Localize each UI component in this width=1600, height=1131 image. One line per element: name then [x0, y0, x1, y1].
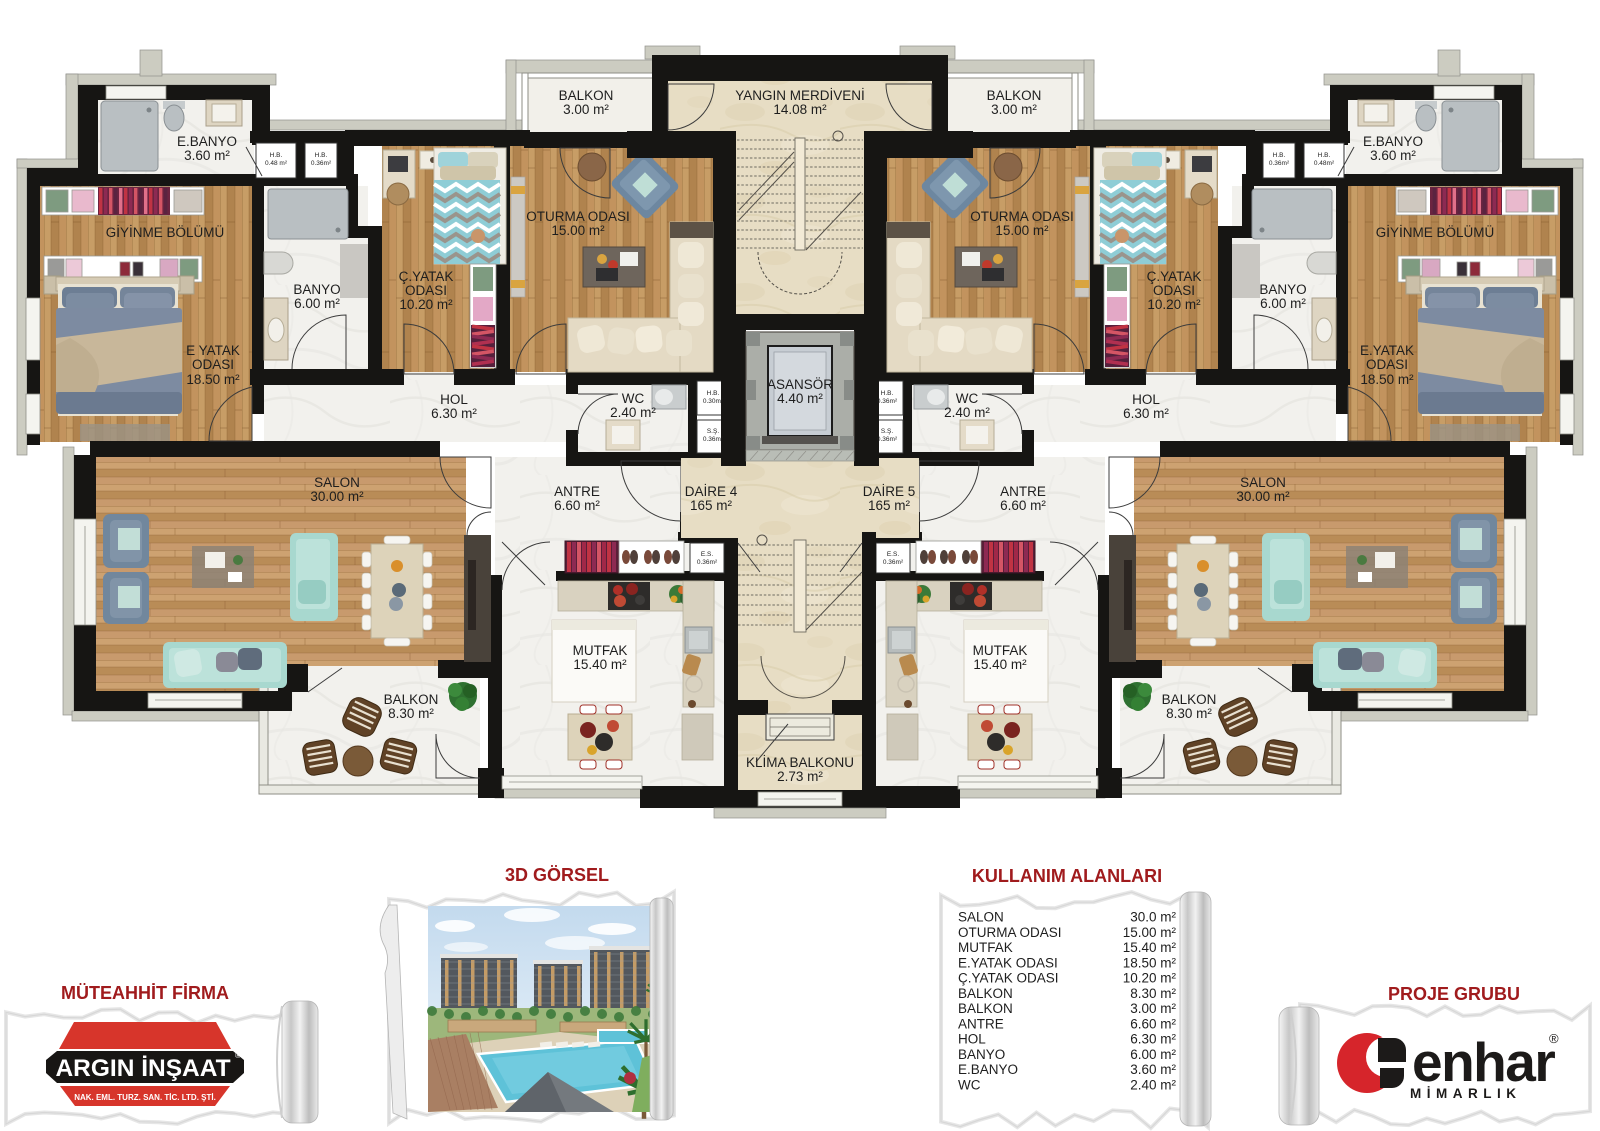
svg-text:ODASI: ODASI [405, 283, 447, 298]
svg-text:BANYO: BANYO [958, 1047, 1005, 1062]
svg-text:8.30 m²: 8.30 m² [388, 706, 434, 721]
svg-text:H.B.: H.B. [315, 152, 328, 159]
svg-text:MUTFAK: MUTFAK [573, 643, 628, 658]
svg-text:3.00 m²: 3.00 m² [991, 102, 1037, 117]
svg-text:HOL: HOL [1132, 392, 1160, 407]
svg-text:BANYO: BANYO [293, 282, 340, 297]
svg-text:0.36m²: 0.36m² [1269, 160, 1290, 167]
svg-text:GİYİNME BÖLÜMÜ: GİYİNME BÖLÜMÜ [106, 225, 225, 240]
svg-text:15.00 m²: 15.00 m² [1123, 925, 1177, 940]
svg-text:6.30 m²: 6.30 m² [1123, 406, 1169, 421]
svg-text:15.00 m²: 15.00 m² [551, 223, 605, 238]
svg-text:6.60 m²: 6.60 m² [554, 498, 600, 513]
svg-text:SALON: SALON [958, 910, 1004, 925]
svg-text:14.08 m²: 14.08 m² [773, 102, 827, 117]
svg-text:MÜTEAHHİT FİRMA: MÜTEAHHİT FİRMA [61, 983, 229, 1003]
svg-text:BALKON: BALKON [987, 88, 1042, 103]
svg-text:S.Ş.: S.Ş. [881, 428, 893, 435]
svg-text:OTURMA ODASI: OTURMA ODASI [970, 209, 1074, 224]
svg-text:E.YATAK: E.YATAK [1360, 343, 1414, 358]
svg-text:0.30m²: 0.30m² [703, 398, 724, 405]
svg-text:E.S.: E.S. [887, 551, 899, 558]
svg-text:BALKON: BALKON [958, 986, 1013, 1001]
svg-text:DAİRE 5: DAİRE 5 [863, 484, 916, 499]
svg-text:ANTRE: ANTRE [1000, 484, 1046, 499]
svg-text:3D GÖRSEL: 3D GÖRSEL [505, 865, 609, 885]
svg-text:Ç.YATAK: Ç.YATAK [399, 269, 454, 284]
svg-text:6.30 m²: 6.30 m² [1130, 1032, 1176, 1047]
svg-text:OTURMA ODASI: OTURMA ODASI [526, 209, 630, 224]
svg-text:SALON: SALON [1240, 475, 1286, 490]
svg-text:®: ® [235, 1051, 241, 1060]
svg-text:15.40 m²: 15.40 m² [973, 657, 1027, 672]
svg-text:ANTRE: ANTRE [554, 484, 600, 499]
svg-text:ODASI: ODASI [192, 357, 234, 372]
svg-text:165 m²: 165 m² [868, 498, 911, 513]
svg-text:6.00 m²: 6.00 m² [1130, 1047, 1176, 1062]
svg-text:NAK. EML. TURZ. SAN. TİC. LTD.: NAK. EML. TURZ. SAN. TİC. LTD. ŞTİ. [74, 1093, 216, 1102]
svg-text:ARGIN İNŞAAT: ARGIN İNŞAAT [55, 1055, 230, 1082]
svg-text:0.36m²: 0.36m² [311, 160, 332, 167]
svg-text:10.20 m²: 10.20 m² [1123, 971, 1177, 986]
svg-text:0.36m²: 0.36m² [703, 436, 724, 443]
svg-text:15.00 m²: 15.00 m² [995, 223, 1049, 238]
svg-text:GİYİNME BÖLÜMÜ: GİYİNME BÖLÜMÜ [1376, 225, 1495, 240]
svg-text:WC: WC [958, 1078, 981, 1093]
svg-text:E.BANYO: E.BANYO [1363, 134, 1423, 149]
svg-text:MUTFAK: MUTFAK [958, 940, 1013, 955]
svg-text:10.20 m²: 10.20 m² [399, 297, 453, 312]
svg-text:0.48m²: 0.48m² [1314, 160, 1335, 167]
svg-text:0.48 m²: 0.48 m² [265, 160, 288, 167]
svg-text:3.00 m²: 3.00 m² [563, 102, 609, 117]
svg-text:3.60 m²: 3.60 m² [184, 148, 230, 163]
svg-text:2.40 m²: 2.40 m² [610, 405, 656, 420]
svg-text:E.BANYO: E.BANYO [958, 1062, 1018, 1077]
svg-text:E.S.: E.S. [701, 551, 713, 558]
svg-text:30.0 m²: 30.0 m² [1130, 910, 1176, 925]
svg-text:DAİRE 4: DAİRE 4 [685, 484, 738, 499]
svg-text:8.30 m²: 8.30 m² [1166, 706, 1212, 721]
svg-text:HOL: HOL [440, 392, 468, 407]
svg-text:165 m²: 165 m² [690, 498, 733, 513]
svg-text:®: ® [1549, 1031, 1559, 1046]
svg-text:E.BANYO: E.BANYO [177, 134, 237, 149]
svg-text:10.20 m²: 10.20 m² [1147, 297, 1201, 312]
svg-text:ASANSÖR: ASANSÖR [767, 377, 833, 392]
svg-text:KULLANIM ALANLARI: KULLANIM ALANLARI [972, 866, 1162, 886]
svg-text:2.73 m²: 2.73 m² [777, 769, 823, 784]
svg-text:MİMARLIK: MİMARLIK [1410, 1086, 1522, 1101]
svg-text:H.B.: H.B. [270, 152, 283, 159]
svg-text:4.40 m²: 4.40 m² [777, 391, 823, 406]
svg-text:3.60 m²: 3.60 m² [1130, 1062, 1176, 1077]
svg-text:ODASI: ODASI [1366, 357, 1408, 372]
svg-text:Ç.YATAK: Ç.YATAK [1147, 269, 1202, 284]
svg-text:HOL: HOL [958, 1032, 986, 1047]
svg-text:WC: WC [956, 391, 979, 406]
svg-text:enhar: enhar [1412, 1031, 1555, 1093]
svg-text:6.30 m²: 6.30 m² [431, 406, 477, 421]
svg-text:2.40 m²: 2.40 m² [1130, 1078, 1176, 1093]
svg-text:BALKON: BALKON [559, 88, 614, 103]
svg-text:MUTFAK: MUTFAK [973, 643, 1028, 658]
svg-text:E.YATAK ODASI: E.YATAK ODASI [958, 955, 1058, 970]
svg-text:OTURMA ODASI: OTURMA ODASI [958, 925, 1062, 940]
svg-text:18.50 m²: 18.50 m² [186, 372, 240, 387]
svg-text:30.00 m²: 30.00 m² [310, 489, 364, 504]
svg-text:0.36m²: 0.36m² [877, 436, 898, 443]
svg-text:18.50 m²: 18.50 m² [1360, 372, 1414, 387]
svg-text:6.60 m²: 6.60 m² [1130, 1016, 1176, 1031]
svg-text:0.36m²: 0.36m² [877, 398, 898, 405]
svg-text:0.36m²: 0.36m² [883, 559, 904, 566]
svg-text:BALKON: BALKON [384, 692, 439, 707]
svg-text:8.30 m²: 8.30 m² [1130, 986, 1176, 1001]
svg-text:BANYO: BANYO [1259, 282, 1306, 297]
svg-text:ANTRE: ANTRE [958, 1016, 1004, 1031]
svg-text:WC: WC [622, 391, 645, 406]
svg-text:KLİMA BALKONU: KLİMA BALKONU [746, 755, 854, 770]
svg-text:15.40 m²: 15.40 m² [573, 657, 627, 672]
svg-text:ODASI: ODASI [1153, 283, 1195, 298]
svg-text:0.36m²: 0.36m² [697, 559, 718, 566]
svg-text:2.40 m²: 2.40 m² [944, 405, 990, 420]
svg-text:6.00 m²: 6.00 m² [294, 296, 340, 311]
svg-text:H.B.: H.B. [707, 390, 720, 397]
svg-text:PROJE GRUBU: PROJE GRUBU [1388, 984, 1520, 1004]
svg-text:H.B.: H.B. [1318, 152, 1331, 159]
svg-text:YANGIN MERDİVENİ: YANGIN MERDİVENİ [735, 88, 865, 103]
svg-text:H.B.: H.B. [881, 390, 894, 397]
svg-text:S.Ş.: S.Ş. [707, 428, 719, 435]
svg-text:SALON: SALON [314, 475, 360, 490]
svg-text:3.00 m²: 3.00 m² [1130, 1001, 1176, 1016]
svg-text:Ç.YATAK ODASI: Ç.YATAK ODASI [958, 971, 1059, 986]
svg-text:E YATAK: E YATAK [186, 343, 240, 358]
svg-text:6.00 m²: 6.00 m² [1260, 296, 1306, 311]
svg-text:15.40 m²: 15.40 m² [1123, 940, 1177, 955]
svg-text:H.B.: H.B. [1273, 152, 1286, 159]
svg-text:BALKON: BALKON [1162, 692, 1217, 707]
svg-text:3.60 m²: 3.60 m² [1370, 148, 1416, 163]
svg-text:30.00 m²: 30.00 m² [1236, 489, 1290, 504]
svg-text:BALKON: BALKON [958, 1001, 1013, 1016]
svg-text:18.50 m²: 18.50 m² [1123, 955, 1177, 970]
svg-text:6.60 m²: 6.60 m² [1000, 498, 1046, 513]
